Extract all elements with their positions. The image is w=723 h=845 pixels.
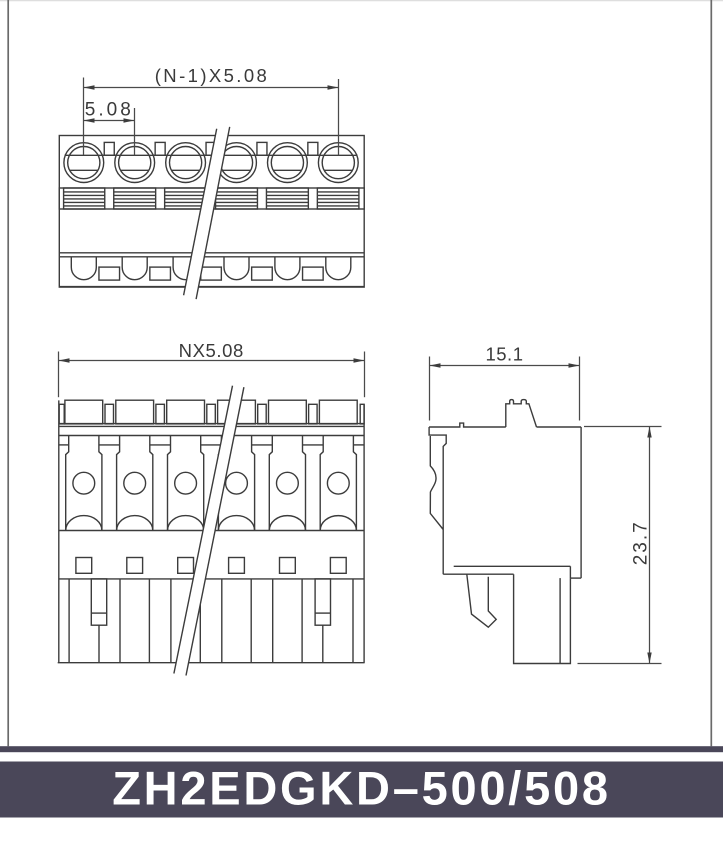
svg-text:23.7: 23.7	[631, 520, 652, 565]
svg-text:15.1: 15.1	[485, 344, 523, 365]
svg-text:5.08: 5.08	[85, 100, 134, 121]
svg-text:(N-1)X5.08: (N-1)X5.08	[155, 65, 269, 86]
svg-text:ZH2EDGKD–500/508: ZH2EDGKD–500/508	[112, 762, 611, 815]
svg-text:NX5.08: NX5.08	[179, 340, 244, 361]
